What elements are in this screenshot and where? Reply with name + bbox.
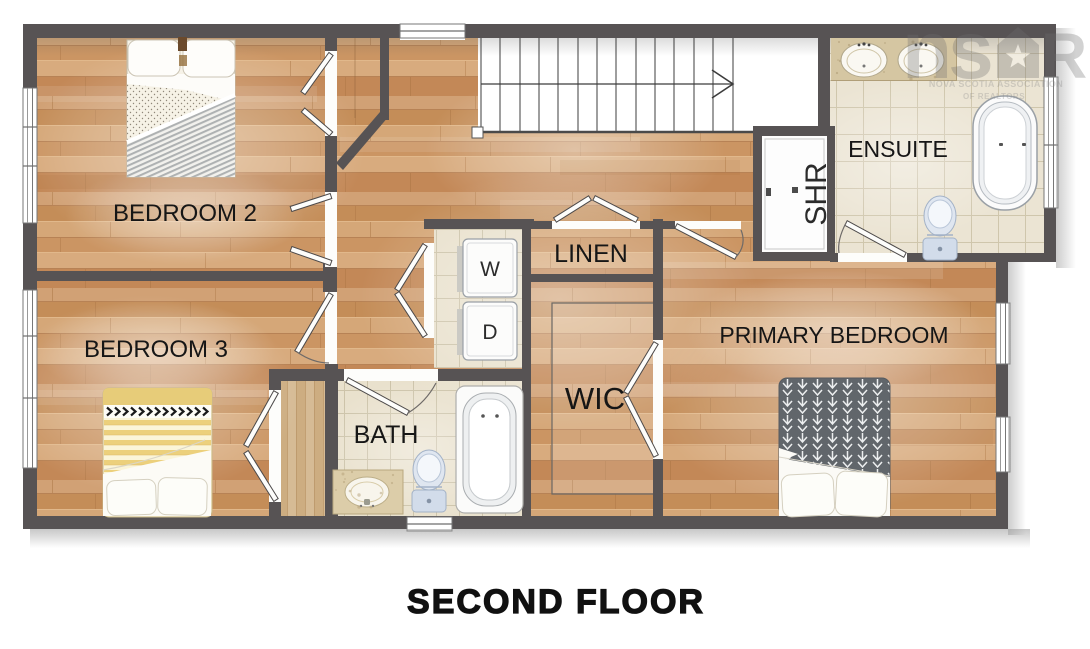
svg-text:BEDROOM 2: BEDROOM 2 [113,200,257,227]
svg-text:BATH: BATH [354,421,419,449]
svg-text:SHR: SHR [800,162,833,225]
svg-text:PRIMARY BEDROOM: PRIMARY BEDROOM [719,322,948,348]
svg-text:OF REALTORS: OF REALTORS [963,92,1025,101]
svg-text:BEDROOM 3: BEDROOM 3 [84,336,228,363]
svg-text:W: W [480,258,500,281]
svg-text:LINEN: LINEN [554,240,628,268]
svg-text:ENSUITE: ENSUITE [848,136,948,162]
svg-text:D: D [482,321,497,344]
svg-text:NOVA SCOTIA ASSOCIATION: NOVA SCOTIA ASSOCIATION [929,79,1063,89]
svg-text:SECOND FLOOR: SECOND FLOOR [407,583,705,621]
svg-text:WIC: WIC [565,381,625,416]
